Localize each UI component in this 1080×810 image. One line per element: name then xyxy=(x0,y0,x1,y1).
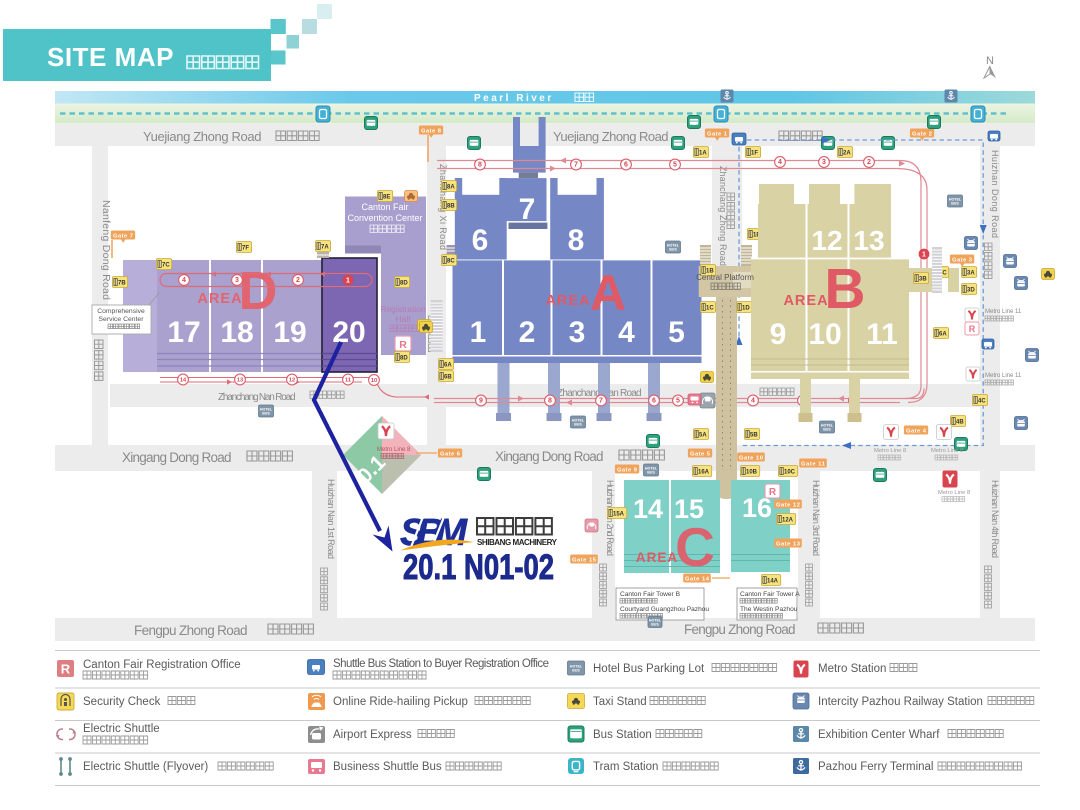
svg-text:Nanfeng Dong Road: Nanfeng Dong Road xyxy=(100,200,112,300)
svg-text:Gate 1: Gate 1 xyxy=(707,131,728,137)
svg-text:Gate 7: Gate 7 xyxy=(113,233,133,239)
svg-text:Hotel Bus Parking Lot: Hotel Bus Parking Lot xyxy=(593,663,705,675)
svg-text:5: 5 xyxy=(668,316,685,349)
svg-text:10B: 10B xyxy=(746,469,758,475)
svg-text:Taxi Stand: Taxi Stand xyxy=(593,696,647,708)
svg-text:7C: 7C xyxy=(162,262,170,268)
svg-text:4: 4 xyxy=(618,316,635,349)
svg-text:Huizhan Nan 1st Road: Huizhan Nan 1st Road xyxy=(326,479,336,559)
svg-text:R: R xyxy=(61,662,71,677)
svg-text:R: R xyxy=(769,487,777,498)
svg-text:Zhanchang Nan Road: Zhanchang Nan Road xyxy=(218,392,296,403)
svg-text:Comprehensive: Comprehensive xyxy=(97,308,145,315)
svg-text:Metro Line 8: Metro Line 8 xyxy=(874,448,906,454)
svg-text:Pazhou Ferry Terminal: Pazhou Ferry Terminal xyxy=(818,761,933,773)
svg-text:BUS: BUS xyxy=(651,623,659,627)
svg-text:B: B xyxy=(824,257,865,321)
svg-text:7F: 7F xyxy=(242,245,249,251)
svg-text:1: 1 xyxy=(470,316,487,349)
svg-text:6: 6 xyxy=(624,162,628,169)
svg-text:1C: 1C xyxy=(706,305,714,311)
svg-text:Electric Shuttle (Flyover): Electric Shuttle (Flyover) xyxy=(83,761,208,773)
svg-text:8E: 8E xyxy=(383,194,390,200)
svg-text:Intercity Pazhou Railway Stati: Intercity Pazhou Railway Station xyxy=(818,696,983,708)
svg-text:2: 2 xyxy=(867,159,871,166)
svg-text:9: 9 xyxy=(479,398,483,405)
svg-text:16A: 16A xyxy=(698,469,710,475)
svg-text:8D: 8D xyxy=(400,280,408,286)
svg-text:Tram Station: Tram Station xyxy=(593,761,658,773)
svg-text:Zhanchang Zhong Road: Zhanchang Zhong Road xyxy=(718,166,728,266)
svg-text:7: 7 xyxy=(519,193,536,226)
svg-text:SHIBANG MACHINERY: SHIBANG MACHINERY xyxy=(477,538,558,547)
svg-text:Xingang Dong Road: Xingang Dong Road xyxy=(495,449,604,464)
svg-text:Central Platform: Central Platform xyxy=(696,273,754,282)
svg-text:R: R xyxy=(969,324,976,334)
svg-text:7: 7 xyxy=(599,398,603,405)
svg-text:4: 4 xyxy=(182,277,186,284)
svg-text:2: 2 xyxy=(296,277,300,284)
svg-text:Metro Station: Metro Station xyxy=(818,663,886,675)
svg-text:Registration: Registration xyxy=(380,304,426,314)
svg-text:6B: 6B xyxy=(444,374,452,380)
svg-text:1: 1 xyxy=(346,277,350,284)
svg-text:7: 7 xyxy=(574,162,578,169)
svg-text:3B: 3B xyxy=(919,276,927,282)
svg-text:Metro Line 8: Metro Line 8 xyxy=(931,448,963,454)
svg-text:Canton Fair Tower B: Canton Fair Tower B xyxy=(620,591,681,598)
svg-text:Pearl River: Pearl River xyxy=(474,93,554,104)
svg-text:8: 8 xyxy=(568,224,585,257)
svg-text:Hall: Hall xyxy=(396,314,411,324)
svg-text:AREA: AREA xyxy=(545,293,590,309)
svg-text:6A: 6A xyxy=(939,331,947,337)
svg-text:Gate 6: Gate 6 xyxy=(440,451,461,457)
svg-text:8B: 8B xyxy=(447,203,455,209)
svg-text:BUS: BUS xyxy=(574,423,582,427)
svg-text:1D: 1D xyxy=(742,305,750,311)
svg-text:14: 14 xyxy=(180,378,187,384)
svg-text:Convention Center: Convention Center xyxy=(347,213,422,223)
svg-text:5: 5 xyxy=(673,162,677,169)
svg-text:8D: 8D xyxy=(400,355,408,361)
svg-text:AREA: AREA xyxy=(783,293,828,309)
svg-text:Exhibition Center Wharf: Exhibition Center Wharf xyxy=(818,729,940,741)
svg-text:8A: 8A xyxy=(447,184,455,190)
svg-text:Security Check: Security Check xyxy=(83,696,161,708)
svg-text:Fengpu Zhong Road: Fengpu Zhong Road xyxy=(134,623,248,638)
svg-text:Yuejiang Zhong Road: Yuejiang Zhong Road xyxy=(143,129,262,144)
svg-text:11: 11 xyxy=(345,378,351,384)
svg-text:7A: 7A xyxy=(321,244,329,250)
svg-text:Huizhan Nan 4th Road: Huizhan Nan 4th Road xyxy=(990,480,1000,558)
svg-text:C: C xyxy=(675,516,715,578)
svg-text:8: 8 xyxy=(478,162,482,169)
svg-text:Gate 10: Gate 10 xyxy=(739,455,763,461)
svg-text:5A: 5A xyxy=(699,432,707,438)
svg-text:Gate 14: Gate 14 xyxy=(685,576,710,582)
svg-text:11: 11 xyxy=(866,318,898,351)
svg-text:7B: 7B xyxy=(118,280,126,286)
svg-text:BUS: BUS xyxy=(572,669,580,673)
svg-text:Canton Fair Registration Offic: Canton Fair Registration Office xyxy=(83,659,241,671)
svg-text:Gate 5: Gate 5 xyxy=(690,451,711,457)
svg-text:1: 1 xyxy=(922,251,926,258)
svg-text:3: 3 xyxy=(822,159,826,166)
svg-text:1F: 1F xyxy=(751,150,758,156)
svg-text:12: 12 xyxy=(811,225,842,256)
svg-text:4C: 4C xyxy=(978,398,986,404)
svg-text:13: 13 xyxy=(853,225,884,256)
svg-text:3: 3 xyxy=(235,277,239,284)
svg-text:Gate 4: Gate 4 xyxy=(906,428,927,434)
svg-text:Shuttle Bus Station to Buyer R: Shuttle Bus Station to Buyer Registratio… xyxy=(333,658,549,670)
svg-text:Gate 15: Gate 15 xyxy=(572,557,597,563)
svg-text:SITE MAP: SITE MAP xyxy=(47,42,175,72)
svg-text:5: 5 xyxy=(676,398,680,405)
svg-text:Xingang Dong Road: Xingang Dong Road xyxy=(122,450,232,465)
svg-text:Canton Fair Tower A: Canton Fair Tower A xyxy=(740,591,800,598)
svg-text:5B: 5B xyxy=(750,432,758,438)
svg-text:Service Center: Service Center xyxy=(99,316,145,323)
svg-text:8: 8 xyxy=(548,398,552,405)
svg-text:BUS: BUS xyxy=(262,412,270,416)
svg-text:14: 14 xyxy=(633,494,663,524)
svg-text:3D: 3D xyxy=(967,287,975,293)
svg-text:8C: 8C xyxy=(447,258,455,264)
svg-text:R: R xyxy=(399,339,407,351)
svg-text:17: 17 xyxy=(167,316,200,349)
svg-text:Yuejiang Zhong Road: Yuejiang Zhong Road xyxy=(553,129,669,144)
svg-text:6: 6 xyxy=(472,224,489,257)
svg-text:4: 4 xyxy=(751,398,755,405)
svg-text:4B: 4B xyxy=(956,419,964,425)
svg-text:Metro Line 11: Metro Line 11 xyxy=(985,309,1022,315)
svg-text:BUS: BUS xyxy=(647,471,655,475)
svg-text:BUS: BUS xyxy=(823,428,831,432)
svg-text:6: 6 xyxy=(652,398,656,405)
svg-text:4: 4 xyxy=(778,159,782,166)
svg-text:9: 9 xyxy=(770,318,787,351)
svg-text:Courtyard Guangzhou Pazhou: Courtyard Guangzhou Pazhou xyxy=(620,606,709,613)
svg-text:Airport Express: Airport Express xyxy=(333,729,412,741)
svg-text:A: A xyxy=(590,265,626,321)
svg-text:Gate 13: Gate 13 xyxy=(776,541,801,547)
svg-text:19: 19 xyxy=(273,316,306,349)
svg-text:AREA: AREA xyxy=(197,291,242,307)
svg-text:Gate 2: Gate 2 xyxy=(912,131,932,137)
svg-text:6A: 6A xyxy=(444,362,452,368)
svg-text:Fengpu Zhong Road: Fengpu Zhong Road xyxy=(684,622,796,637)
svg-text:Metro Line 8: Metro Line 8 xyxy=(377,447,411,453)
svg-text:12A: 12A xyxy=(782,517,794,523)
svg-text:Business Shuttle Bus: Business Shuttle Bus xyxy=(333,761,442,773)
svg-text:BUS: BUS xyxy=(951,202,959,206)
svg-text:Canton Fair: Canton Fair xyxy=(361,202,408,212)
svg-text:N: N xyxy=(986,55,994,67)
svg-text:10C: 10C xyxy=(784,469,796,475)
svg-text:The Westin Pazhou: The Westin Pazhou xyxy=(740,606,798,613)
svg-text:14A: 14A xyxy=(767,578,779,584)
svg-text:Huizhan Nan 3rd Road: Huizhan Nan 3rd Road xyxy=(811,480,821,556)
svg-text:1A: 1A xyxy=(699,150,707,156)
svg-text:Gate 8: Gate 8 xyxy=(421,128,442,134)
svg-text:AREA: AREA xyxy=(636,550,678,565)
svg-text:2: 2 xyxy=(519,316,536,349)
svg-text:15A: 15A xyxy=(613,511,625,517)
svg-text:13: 13 xyxy=(237,378,243,384)
svg-text:Metro Line 11: Metro Line 11 xyxy=(985,373,1022,379)
svg-text:Gate 12: Gate 12 xyxy=(776,502,800,508)
svg-text:3: 3 xyxy=(569,316,586,349)
svg-text:Gate 3: Gate 3 xyxy=(952,257,973,263)
svg-text:12: 12 xyxy=(289,378,295,384)
svg-text:BUS: BUS xyxy=(669,248,677,252)
svg-text:3A: 3A xyxy=(967,270,975,276)
svg-text:D: D xyxy=(239,261,278,321)
svg-text:Bus Station: Bus Station xyxy=(593,729,652,741)
svg-text:20.1 N01-02: 20.1 N01-02 xyxy=(403,548,554,587)
svg-text:Online Ride-hailing Pickup: Online Ride-hailing Pickup xyxy=(333,696,468,708)
svg-text:Gate 11: Gate 11 xyxy=(801,461,826,467)
svg-text:2A: 2A xyxy=(843,150,851,156)
svg-text:Electric Shuttle: Electric Shuttle xyxy=(83,723,160,735)
svg-text:10: 10 xyxy=(808,318,841,351)
svg-text:18: 18 xyxy=(220,316,253,349)
svg-text:Gate 9: Gate 9 xyxy=(617,467,638,473)
svg-text:20: 20 xyxy=(332,316,365,349)
svg-text:Metro Line 8: Metro Line 8 xyxy=(938,490,970,496)
svg-text:Huizhan Dong Road: Huizhan Dong Road xyxy=(990,150,1000,238)
svg-text:10: 10 xyxy=(371,378,377,384)
